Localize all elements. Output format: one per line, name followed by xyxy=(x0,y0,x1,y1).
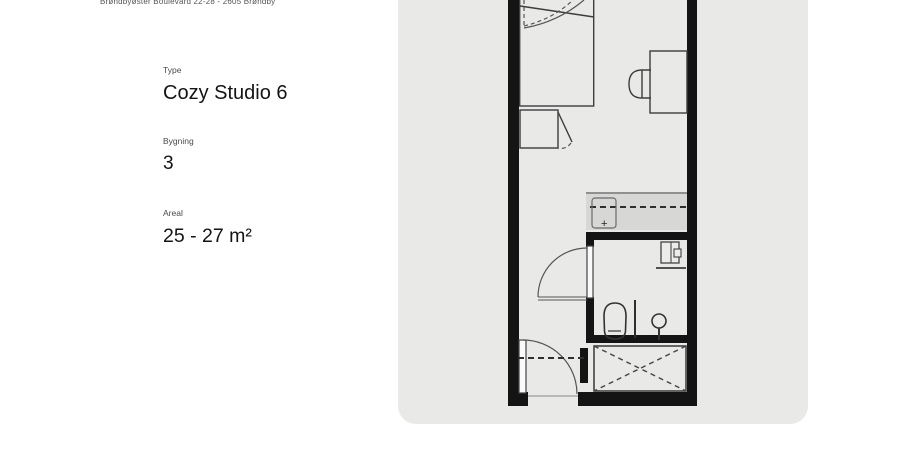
shaft-wall-stub xyxy=(580,348,588,383)
bathroom-wall-bottom xyxy=(586,335,687,343)
entry-door-leaf xyxy=(519,340,526,393)
bathroom-door-leaf xyxy=(587,246,593,298)
washbasin-faucet xyxy=(674,249,681,257)
kitchen-faucet-marker: + xyxy=(601,218,607,230)
chair xyxy=(629,70,651,98)
bathroom-wall-stub xyxy=(586,232,594,247)
toilet xyxy=(604,303,626,339)
bathroom-door-closed-line xyxy=(538,297,587,300)
bathroom-wall-top xyxy=(586,232,687,240)
entry-door-swing-arc xyxy=(523,340,577,394)
wardrobe-door-arc xyxy=(557,143,571,148)
wardrobe-door-line xyxy=(558,112,572,142)
wall-left xyxy=(508,0,519,406)
bed-fold-line xyxy=(520,6,594,17)
desk xyxy=(650,51,687,113)
wall-bottom-right xyxy=(578,392,697,406)
shower-drain xyxy=(652,314,666,328)
shaft xyxy=(594,346,686,391)
listing-page: Brøndbyøster Boulevard 22-28 - 2605 Brøn… xyxy=(0,0,905,460)
wall-bottom-left xyxy=(508,392,528,406)
bathroom-door-swing-arc xyxy=(538,248,587,297)
wardrobe xyxy=(520,110,558,148)
wall-right xyxy=(687,0,697,406)
shaft-cross xyxy=(594,346,686,391)
floorplan-drawing: + xyxy=(0,0,905,460)
bathroom-wall-lower xyxy=(586,297,594,335)
